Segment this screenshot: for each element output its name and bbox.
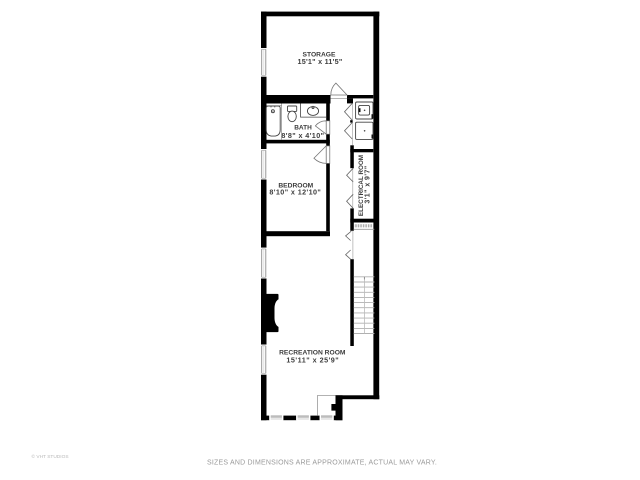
svg-text:© VHT STUDIOS: © VHT STUDIOS <box>32 453 69 460</box>
svg-text:SIZES AND DIMENSIONS ARE APPRO: SIZES AND DIMENSIONS ARE APPROXIMATE, AC… <box>207 459 437 466</box>
svg-text:8'8" x 4'10": 8'8" x 4'10" <box>281 131 324 140</box>
svg-text:15'1" x 11'5": 15'1" x 11'5" <box>297 57 342 66</box>
svg-text:15'11" x 25'9": 15'11" x 25'9" <box>286 355 339 364</box>
svg-text:3'1" x 9'7": 3'1" x 9'7" <box>365 165 372 203</box>
svg-text:8'10" x 12'10": 8'10" x 12'10" <box>269 188 321 197</box>
